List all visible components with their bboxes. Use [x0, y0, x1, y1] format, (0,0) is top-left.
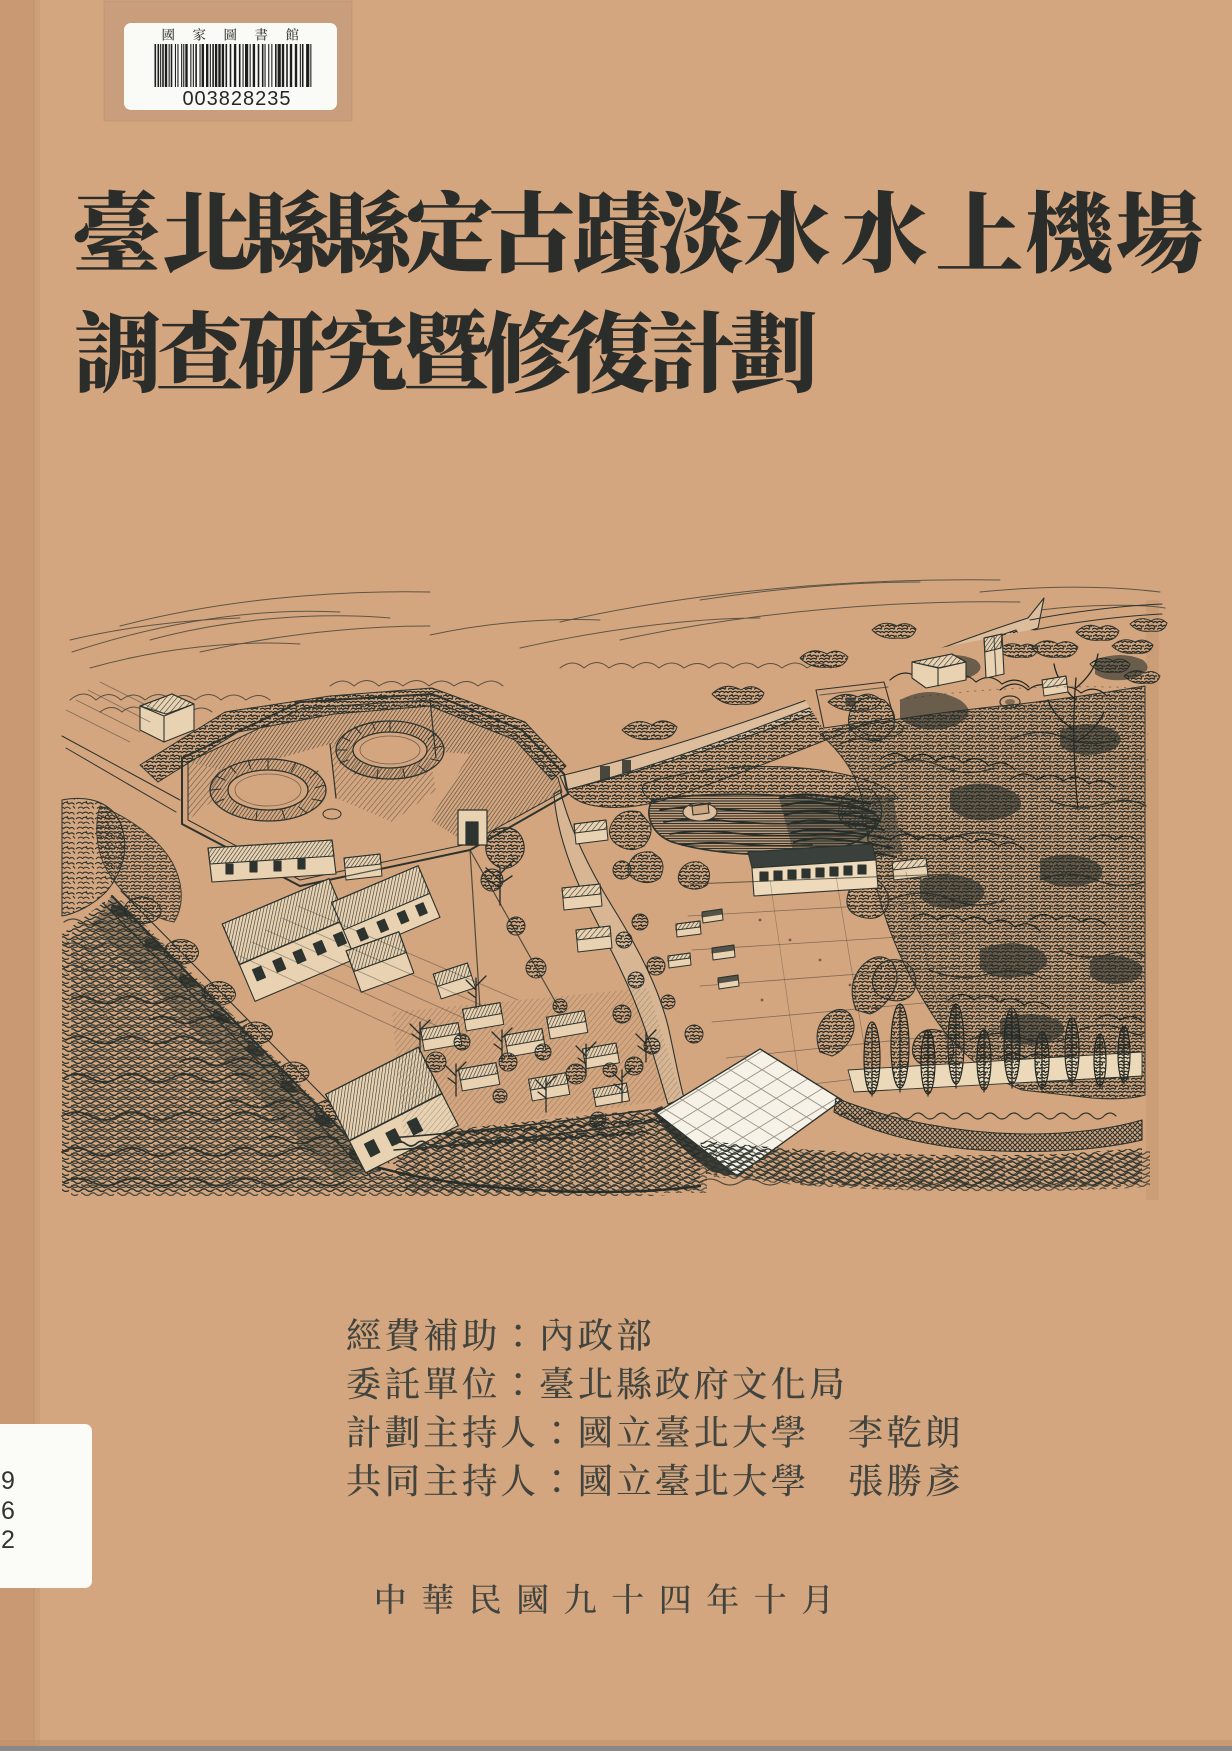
svg-text:003828235: 003828235: [182, 88, 291, 110]
svg-text:6: 6: [1, 1497, 15, 1525]
svg-text:9: 9: [1, 1467, 15, 1495]
svg-text:2: 2: [1, 1526, 15, 1554]
